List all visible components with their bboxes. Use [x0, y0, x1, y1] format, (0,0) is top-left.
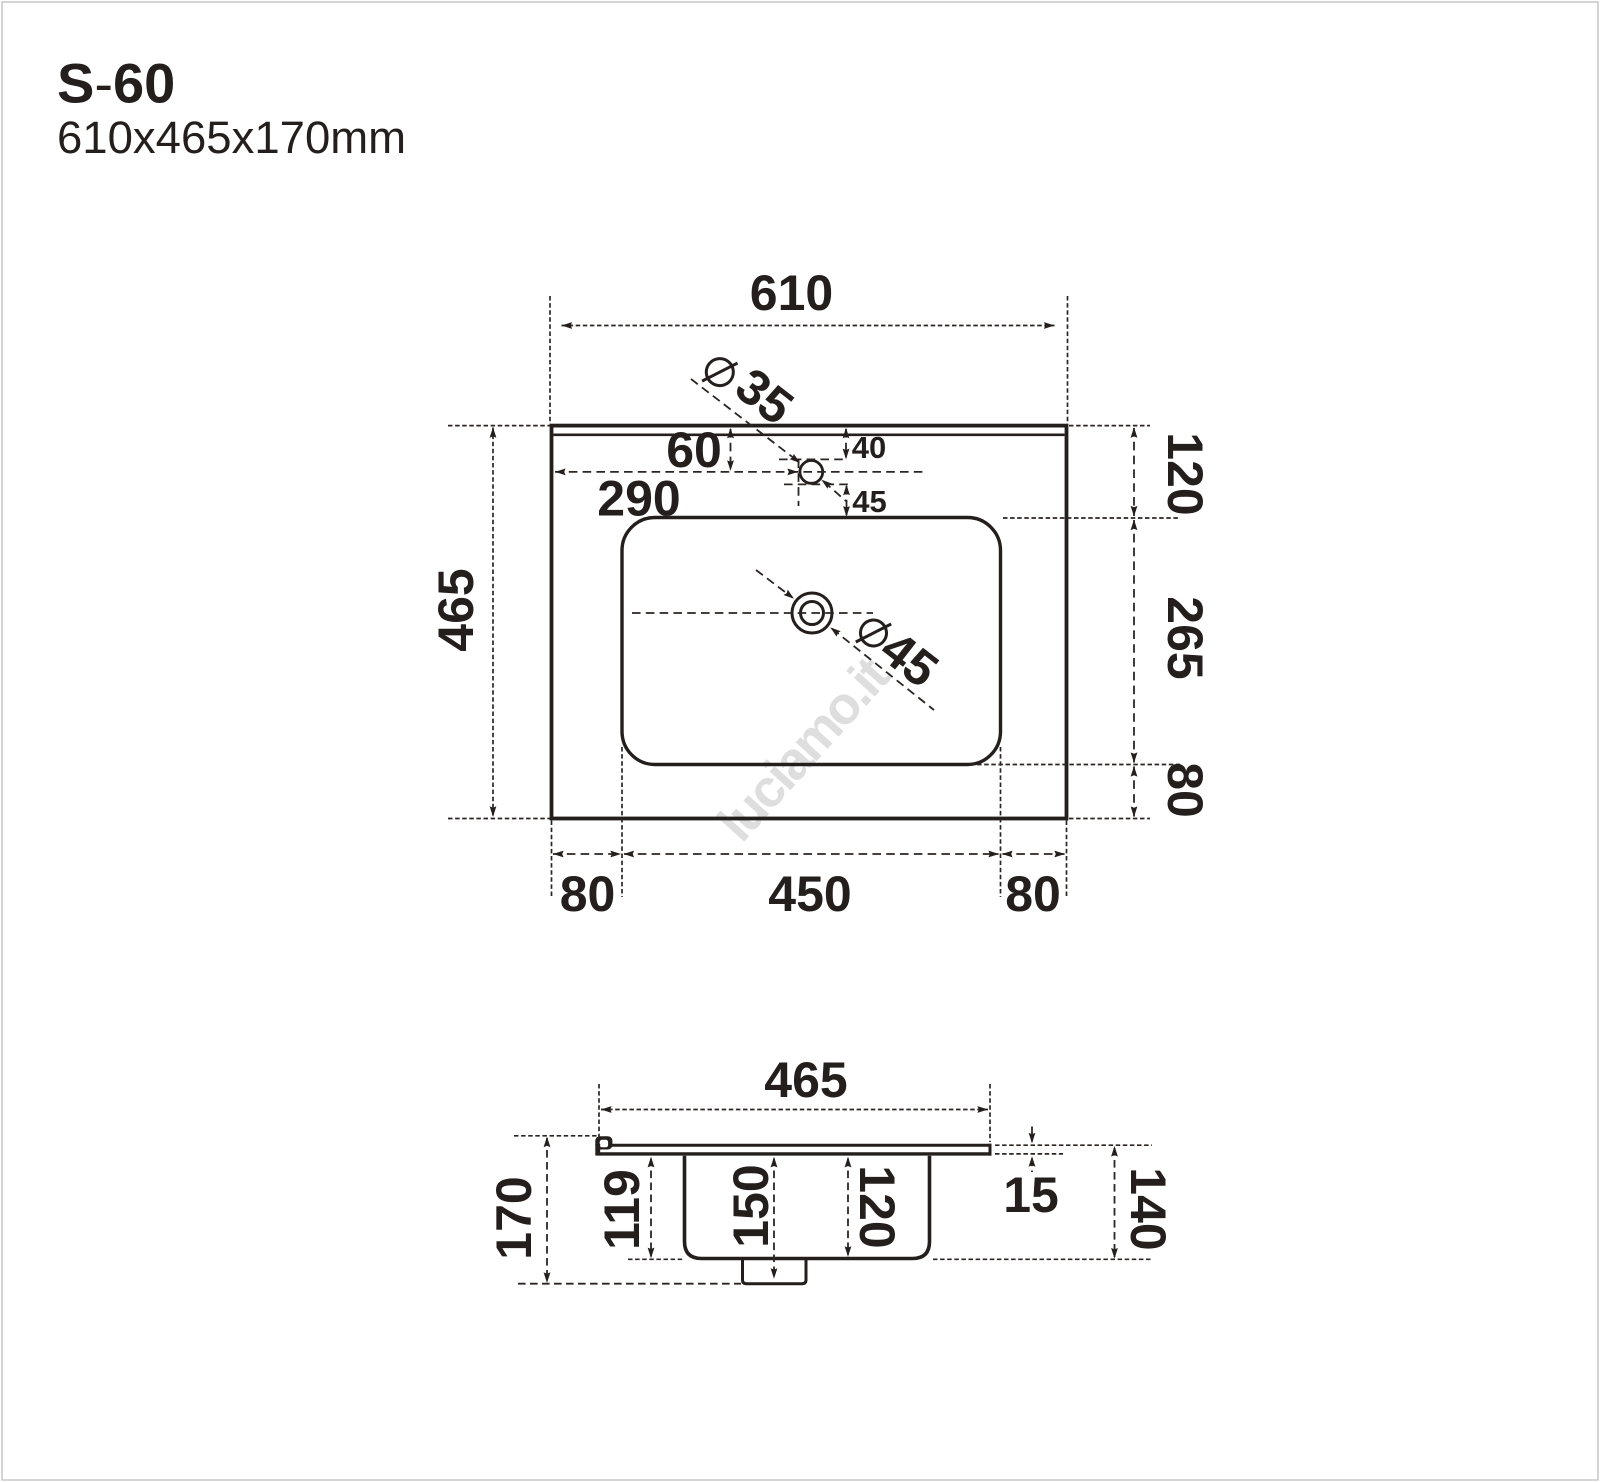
svg-text:119: 119: [594, 1169, 650, 1250]
svg-text:80: 80: [560, 866, 616, 922]
svg-text:465: 465: [764, 1052, 847, 1108]
svg-text:45: 45: [852, 484, 886, 519]
svg-text:170: 170: [486, 1176, 542, 1259]
svg-text:S-60: S-60: [57, 52, 175, 115]
svg-text:450: 450: [768, 866, 851, 922]
svg-text:150: 150: [723, 1164, 779, 1247]
svg-text:80: 80: [1157, 762, 1213, 818]
svg-text:15: 15: [1003, 1167, 1059, 1223]
svg-text:610x465x170mm: 610x465x170mm: [57, 112, 406, 163]
svg-text:40: 40: [852, 430, 886, 465]
svg-text:290: 290: [597, 471, 680, 527]
svg-text:80: 80: [1005, 866, 1061, 922]
svg-text:265: 265: [1157, 596, 1213, 679]
svg-text:120: 120: [1157, 432, 1213, 515]
svg-text:465: 465: [428, 568, 484, 651]
svg-text:120: 120: [849, 1165, 905, 1248]
svg-text:610: 610: [750, 265, 833, 321]
svg-text:140: 140: [1120, 1167, 1176, 1250]
